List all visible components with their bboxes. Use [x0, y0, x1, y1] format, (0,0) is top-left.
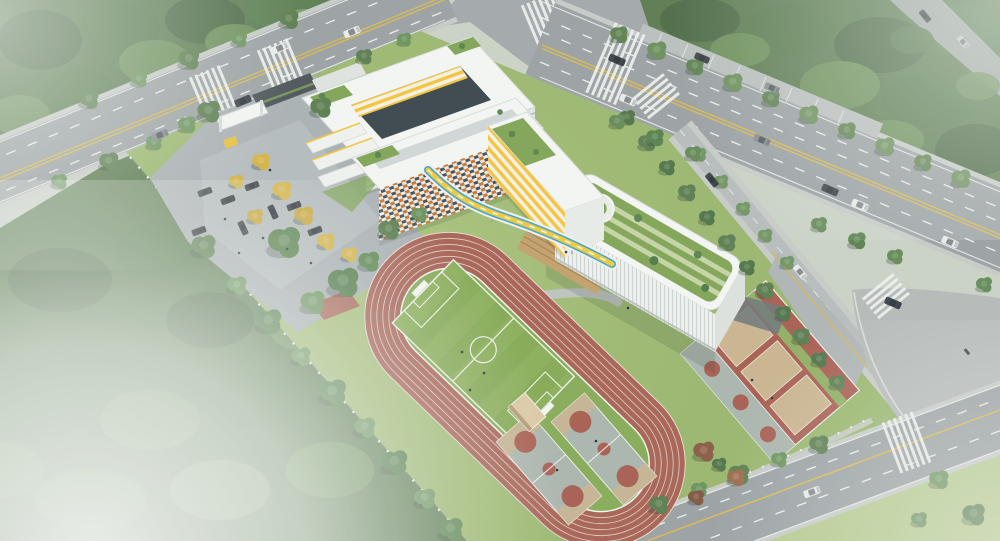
campus-aerial-rendering: [0, 0, 1000, 541]
fog-veil: [0, 0, 1000, 541]
rendering-canvas: [0, 0, 1000, 541]
fog-overlays: [0, 0, 1000, 541]
